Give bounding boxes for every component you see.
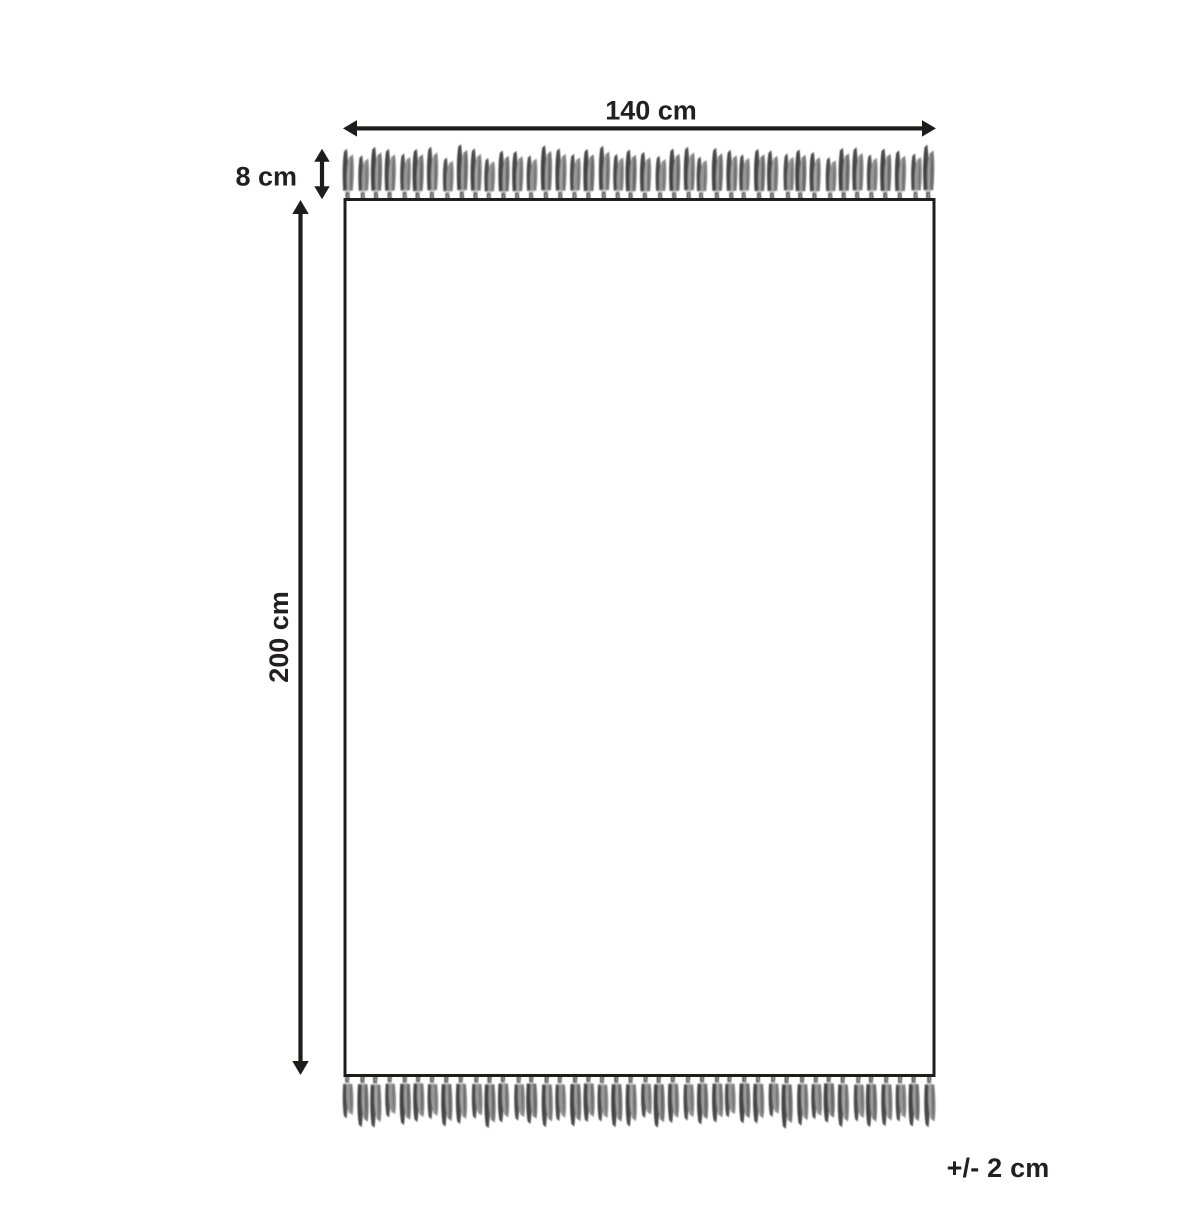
svg-text:8 cm: 8 cm <box>235 162 297 192</box>
svg-text:200 cm: 200 cm <box>264 591 294 683</box>
svg-text:140 cm: 140 cm <box>605 96 697 126</box>
svg-text:+/- 2 cm: +/- 2 cm <box>947 1153 1050 1183</box>
